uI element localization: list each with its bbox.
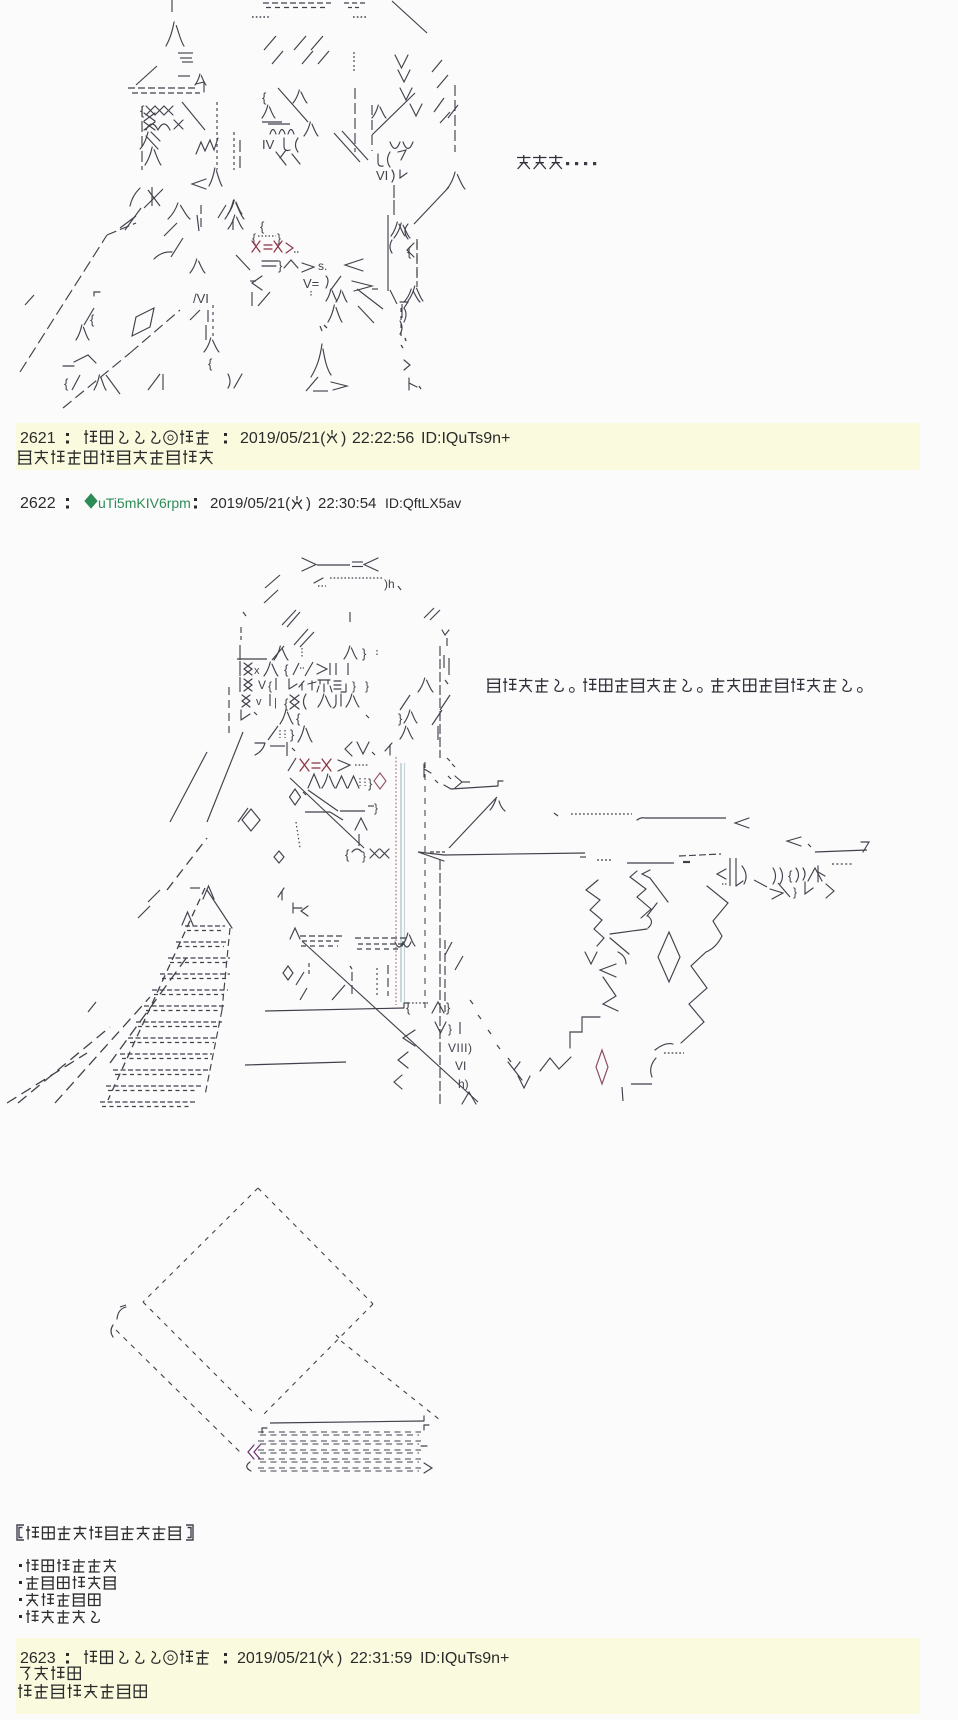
svg-text:): ) — [337, 1650, 342, 1667]
svg-text:): ) — [306, 495, 311, 512]
svg-text:ID:IQuTs9n+: ID:IQuTs9n+ — [420, 1650, 509, 1667]
svg-text:ID:IQuTs9n+: ID:IQuTs9n+ — [421, 430, 510, 447]
svg-text:2622: 2622 — [20, 495, 56, 512]
svg-text:{: { — [260, 219, 265, 234]
svg-text:{: { — [406, 1000, 411, 1015]
svg-text:x: x — [254, 665, 260, 677]
svg-text:VI: VI — [376, 168, 388, 183]
svg-text:2019/05/21(: 2019/05/21( — [240, 430, 326, 447]
svg-text:2621: 2621 — [20, 430, 56, 447]
svg-text:{: { — [345, 847, 350, 862]
svg-text:22:30:54: 22:30:54 — [318, 495, 376, 512]
svg-text:{: { — [296, 711, 301, 726]
svg-text:uTi5mKIV6rpm: uTi5mKIV6rpm — [98, 495, 191, 511]
svg-text:)h: )h — [384, 577, 395, 591]
svg-text:{: { — [262, 90, 267, 105]
svg-text:}: } — [374, 801, 378, 815]
svg-text:|: | — [274, 697, 277, 709]
svg-text:}: } — [290, 727, 295, 742]
svg-text:{: { — [208, 356, 213, 371]
svg-text:{: { — [284, 662, 289, 677]
svg-text:}: } — [446, 1000, 451, 1015]
svg-text:VI: VI — [455, 1059, 466, 1073]
svg-text:}: } — [793, 885, 797, 899]
svg-text:}: } — [368, 776, 373, 791]
svg-text:22:31:59: 22:31:59 — [350, 1650, 412, 1667]
svg-text:}: } — [362, 849, 366, 863]
svg-text:22:22:56: 22:22:56 — [352, 430, 414, 447]
svg-text:{: { — [284, 696, 289, 711]
svg-text:v: v — [256, 696, 262, 708]
svg-text:{: { — [64, 376, 69, 391]
svg-text:}: } — [365, 679, 369, 693]
svg-text:/VI: /VI — [193, 291, 209, 306]
svg-text:s.: s. — [318, 259, 327, 273]
svg-text:h): h) — [458, 1077, 469, 1091]
svg-text:}: } — [352, 679, 356, 693]
svg-text:V: V — [258, 678, 266, 692]
svg-text:}: } — [362, 646, 367, 661]
svg-text:V=: V= — [303, 276, 319, 291]
svg-text:{: { — [90, 312, 95, 327]
svg-text:IV: IV — [262, 137, 275, 152]
svg-text:ID:QftLX5av: ID:QftLX5av — [385, 495, 461, 511]
svg-text:}: } — [398, 711, 403, 726]
svg-text:2019/05/21(: 2019/05/21( — [210, 495, 290, 512]
svg-text:2019/05/21(: 2019/05/21( — [237, 1650, 323, 1667]
svg-text:}: } — [278, 258, 283, 273]
svg-text:2623: 2623 — [20, 1650, 56, 1667]
svg-text:{: { — [788, 868, 793, 883]
svg-text:): ) — [341, 430, 346, 447]
svg-text:VIII): VIII) — [448, 1041, 473, 1055]
svg-text:}: } — [448, 1022, 452, 1036]
svg-text:{: { — [268, 679, 272, 693]
